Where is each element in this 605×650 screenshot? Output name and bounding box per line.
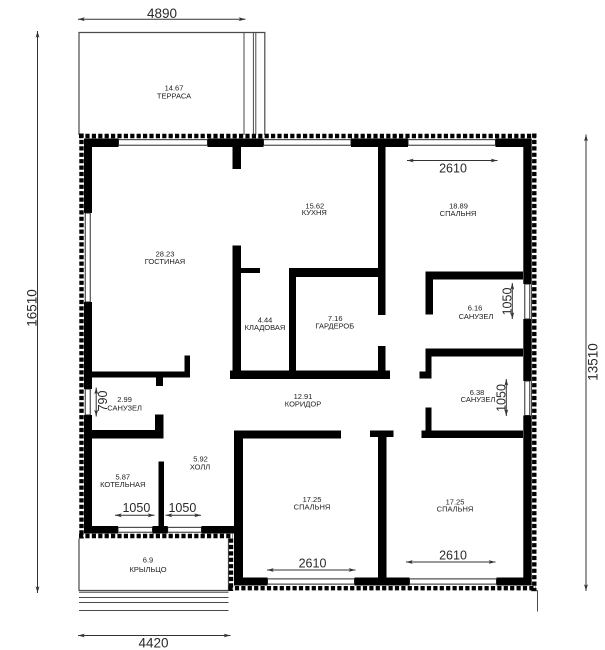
svg-text:6.9: 6.9 — [143, 556, 153, 565]
svg-text:КОТЕЛЬНАЯ: КОТЕЛЬНАЯ — [100, 480, 145, 489]
svg-text:4420: 4420 — [138, 636, 168, 650]
svg-text:КОРИДОР: КОРИДОР — [285, 400, 321, 409]
svg-text:1050: 1050 — [168, 501, 196, 515]
svg-text:КУХНЯ: КУХНЯ — [302, 208, 327, 217]
svg-text:2610: 2610 — [439, 548, 467, 562]
svg-text:СПАЛЬНЯ: СПАЛЬНЯ — [440, 209, 477, 218]
svg-text:СПАЛЬНЯ: СПАЛЬНЯ — [294, 502, 331, 511]
svg-text:1050: 1050 — [495, 384, 509, 412]
svg-text:КРЫЛЬЦО: КРЫЛЬЦО — [129, 565, 166, 574]
svg-text:4890: 4890 — [147, 6, 177, 21]
svg-text:САНУЗЕЛ: САНУЗЕЛ — [459, 312, 494, 321]
svg-text:СПАЛЬНЯ: СПАЛЬНЯ — [437, 504, 474, 513]
svg-text:САНУЗЕЛ: САНУЗЕЛ — [107, 403, 142, 412]
svg-text:КЛАДОВАЯ: КЛАДОВАЯ — [245, 323, 286, 332]
svg-text:САНУЗЕЛ: САНУЗЕЛ — [461, 395, 496, 404]
svg-text:2610: 2610 — [299, 556, 327, 570]
svg-text:ГОСТИНАЯ: ГОСТИНАЯ — [145, 257, 185, 266]
svg-text:1050: 1050 — [122, 501, 150, 515]
svg-text:13510: 13510 — [586, 343, 601, 381]
svg-text:1050: 1050 — [501, 288, 515, 316]
svg-text:ТЕРРАСА: ТЕРРАСА — [157, 92, 191, 101]
svg-text:2610: 2610 — [439, 162, 467, 176]
svg-text:16510: 16510 — [24, 289, 39, 327]
svg-text:ГАРДЕРОБ: ГАРДЕРОБ — [315, 322, 354, 331]
svg-text:ХОЛЛ: ХОЛЛ — [190, 463, 210, 472]
